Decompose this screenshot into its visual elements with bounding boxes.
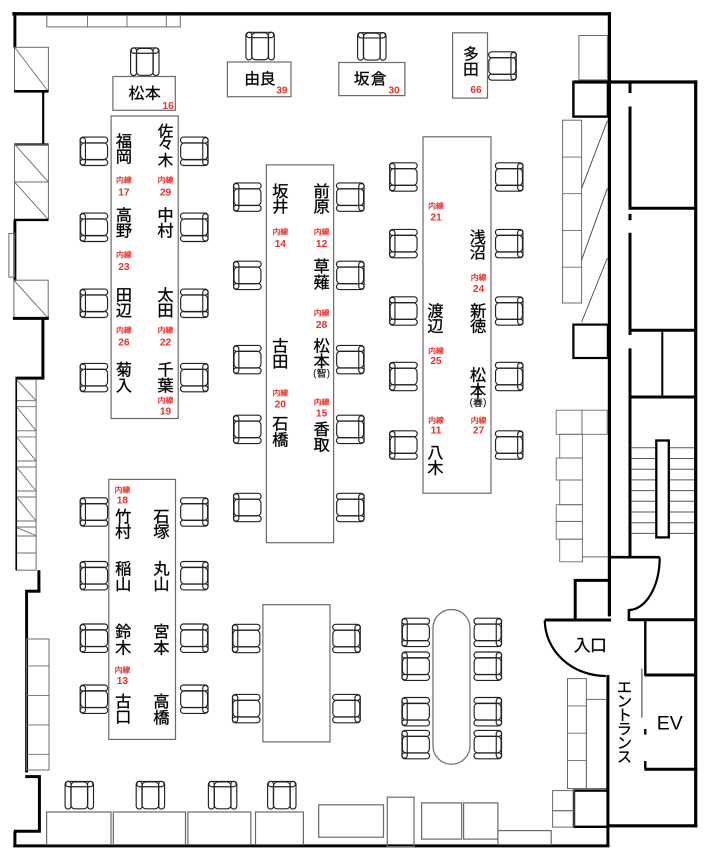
svg-text:39: 39: [276, 85, 288, 96]
svg-text:24: 24: [473, 284, 485, 295]
svg-text:30: 30: [388, 86, 400, 97]
svg-text:28: 28: [316, 320, 328, 331]
svg-text:20: 20: [275, 399, 287, 410]
svg-text:22: 22: [160, 337, 172, 348]
svg-text:15: 15: [316, 409, 328, 420]
svg-text:66: 66: [470, 85, 482, 96]
svg-text:23: 23: [118, 262, 130, 273]
svg-text:EV: EV: [657, 713, 683, 735]
svg-text:11: 11: [431, 426, 442, 437]
svg-text:12: 12: [316, 239, 328, 250]
svg-text:26: 26: [118, 337, 130, 348]
svg-text:13: 13: [117, 676, 129, 687]
svg-text:18: 18: [117, 496, 129, 507]
svg-text:14: 14: [275, 239, 287, 250]
svg-text:19: 19: [160, 407, 172, 418]
svg-text:): ): [483, 398, 486, 409]
svg-text:27: 27: [473, 426, 485, 437]
svg-text:29: 29: [160, 188, 172, 199]
svg-text:17: 17: [118, 188, 130, 199]
svg-text:16: 16: [162, 101, 174, 112]
svg-text:21: 21: [430, 213, 442, 224]
svg-text:): ): [327, 368, 330, 379]
svg-text:25: 25: [430, 356, 442, 367]
